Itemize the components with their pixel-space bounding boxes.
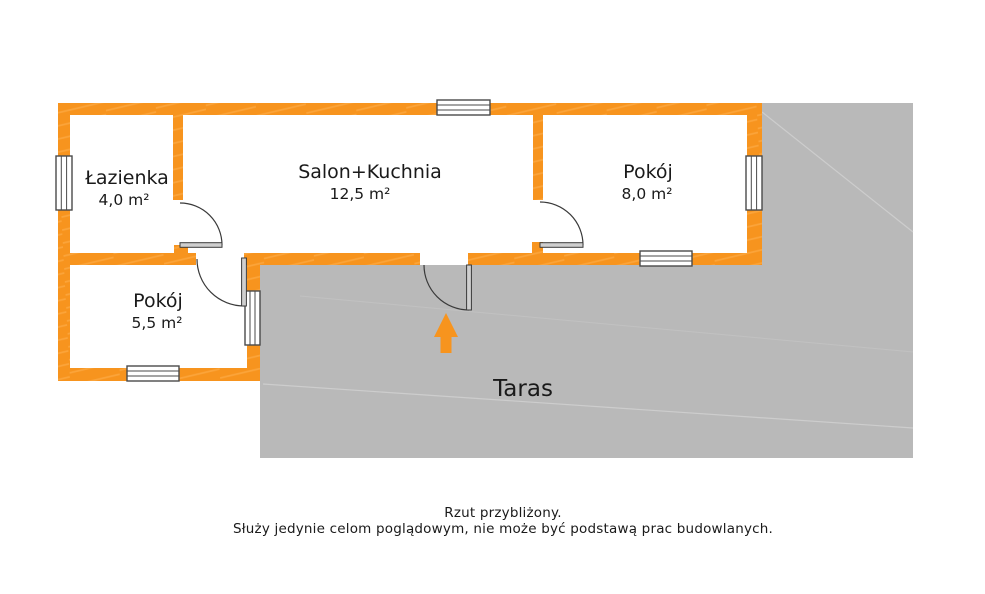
room-area-livingroom: 12,5 m² (330, 185, 391, 203)
window-room8-bottom (640, 251, 692, 266)
floor-plan-page: Łazienka 4,0 m² Salon+Kuchnia 12,5 m² Po… (0, 0, 985, 594)
wall-exterior-left (58, 103, 70, 381)
footer-disclaimer: Rzut przybliżony. Służy jedynie celom po… (233, 505, 773, 537)
floor-plan-drawing: Łazienka 4,0 m² Salon+Kuchnia 12,5 m² Po… (0, 0, 985, 594)
wall-mid-center-segment (244, 253, 420, 265)
window-room55-right (245, 291, 260, 345)
window-livingroom-top (437, 100, 490, 115)
terrace-label: Taras (492, 376, 553, 402)
room-label-livingroom: Salon+Kuchnia (298, 161, 442, 183)
room-area-room55: 5,5 m² (132, 314, 183, 332)
footer-line-2: Służy jedynie celom poglądowym, nie może… (233, 521, 773, 537)
window-room8-right (746, 156, 762, 210)
wall-mid-left-segment (58, 253, 196, 265)
wall-mid-right-segment (468, 253, 762, 265)
room-area-room8: 8,0 m² (622, 185, 673, 203)
wall-bathroom-livingroom (173, 115, 183, 200)
window-room55-bottom (127, 366, 179, 381)
wall-exterior-top (58, 103, 762, 115)
room-label-room8: Pokój (623, 161, 673, 183)
wall-livingroom-room8 (533, 115, 543, 200)
room-label-bathroom: Łazienka (84, 167, 169, 189)
window-bathroom-left (56, 156, 72, 210)
footer-line-1: Rzut przybliżony. (444, 505, 562, 521)
room-area-bathroom: 4,0 m² (99, 191, 150, 209)
room-label-room55: Pokój (133, 290, 183, 312)
